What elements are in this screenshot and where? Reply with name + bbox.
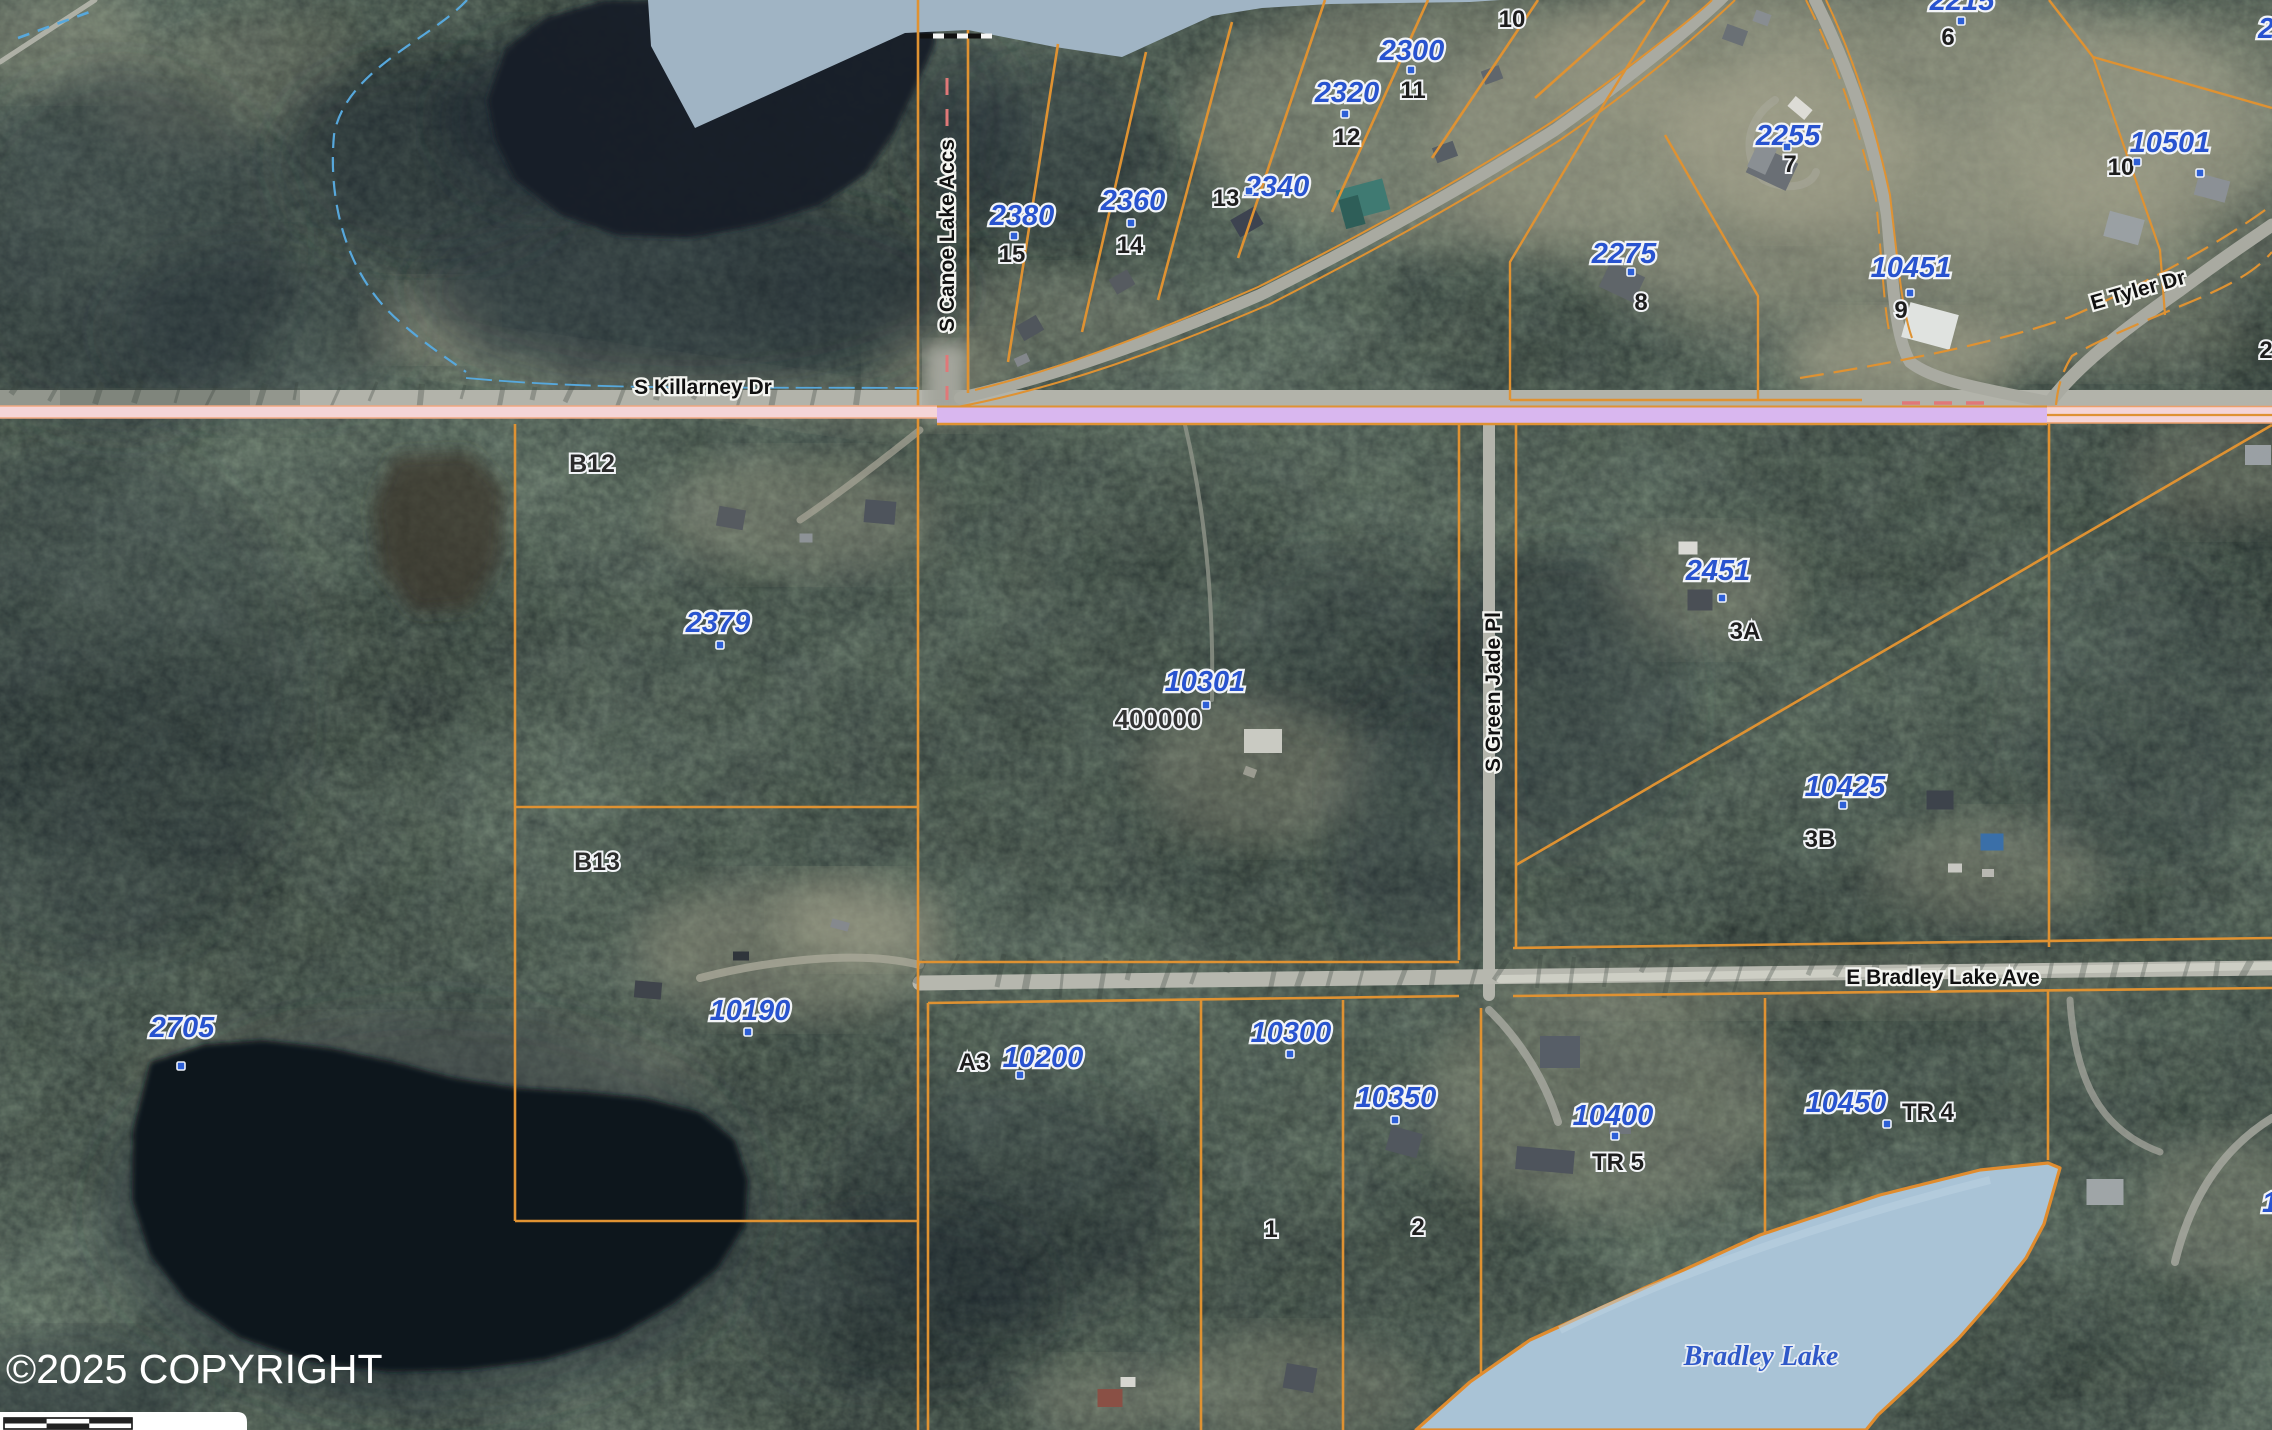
svg-text:6: 6 <box>1941 24 1954 51</box>
svg-text:10301: 10301 <box>1165 666 1246 698</box>
svg-text:B12: B12 <box>569 450 615 478</box>
svg-text:10425: 10425 <box>1805 771 1887 803</box>
svg-text:2215: 2215 <box>1929 0 1995 17</box>
svg-text:13: 13 <box>1213 185 1240 212</box>
svg-text:10300: 10300 <box>1251 1017 1332 1049</box>
svg-text:2379: 2379 <box>685 607 751 639</box>
svg-text:15: 15 <box>999 241 1026 268</box>
svg-text:2360: 2360 <box>1100 185 1166 217</box>
svg-text:11: 11 <box>1400 77 1425 104</box>
svg-text:9: 9 <box>1894 297 1907 324</box>
svg-text:10: 10 <box>1499 6 1526 33</box>
svg-text:7: 7 <box>1783 151 1796 178</box>
svg-text:©2025 COPYRIGHT: ©2025 COPYRIGHT <box>6 1346 383 1392</box>
svg-text:10350: 10350 <box>1356 1082 1437 1114</box>
svg-text:2: 2 <box>1411 1214 1424 1241</box>
svg-text:2300: 2300 <box>1379 35 1445 67</box>
svg-text:2: 2 <box>2257 13 2272 45</box>
svg-text:S Green Jade Pl: S Green Jade Pl <box>1482 612 1505 772</box>
svg-text:S Canoe Lake Accs: S Canoe Lake Accs <box>936 139 959 332</box>
svg-text:3A: 3A <box>1730 618 1761 645</box>
svg-text:A3: A3 <box>959 1049 990 1076</box>
svg-text:B13: B13 <box>574 848 620 876</box>
svg-text:10451: 10451 <box>1871 252 1952 284</box>
svg-text:10400: 10400 <box>1573 1100 1654 1132</box>
svg-text:2275: 2275 <box>1591 238 1657 270</box>
svg-text:3B: 3B <box>1805 826 1836 853</box>
svg-text:12: 12 <box>1334 124 1361 151</box>
svg-text:400000: 400000 <box>1115 704 1202 734</box>
svg-text:2451: 2451 <box>1685 555 1751 587</box>
svg-text:1: 1 <box>1264 1216 1277 1243</box>
svg-text:2: 2 <box>2259 337 2272 364</box>
svg-text:10: 10 <box>2108 154 2135 181</box>
svg-text:TR 4: TR 4 <box>1902 1099 1955 1126</box>
svg-text:10200: 10200 <box>1003 1042 1084 1074</box>
svg-text:2340: 2340 <box>1244 171 1310 203</box>
svg-text:10: 10 <box>2262 1187 2272 1219</box>
svg-text:10501: 10501 <box>2130 127 2211 159</box>
svg-text:E Bradley Lake Ave: E Bradley Lake Ave <box>1846 966 2039 989</box>
svg-text:S Killarney Dr: S Killarney Dr <box>634 376 772 399</box>
svg-text:2380: 2380 <box>989 200 1055 232</box>
svg-text:10450: 10450 <box>1806 1087 1887 1119</box>
svg-text:10190: 10190 <box>710 995 791 1027</box>
svg-text:14: 14 <box>1117 232 1144 259</box>
svg-text:Bradley Lake: Bradley Lake <box>1683 1341 1839 1372</box>
svg-text:2320: 2320 <box>1314 77 1380 109</box>
svg-text:8: 8 <box>1634 289 1647 316</box>
svg-text:2705: 2705 <box>149 1012 215 1044</box>
svg-text:TR 5: TR 5 <box>1592 1149 1644 1176</box>
